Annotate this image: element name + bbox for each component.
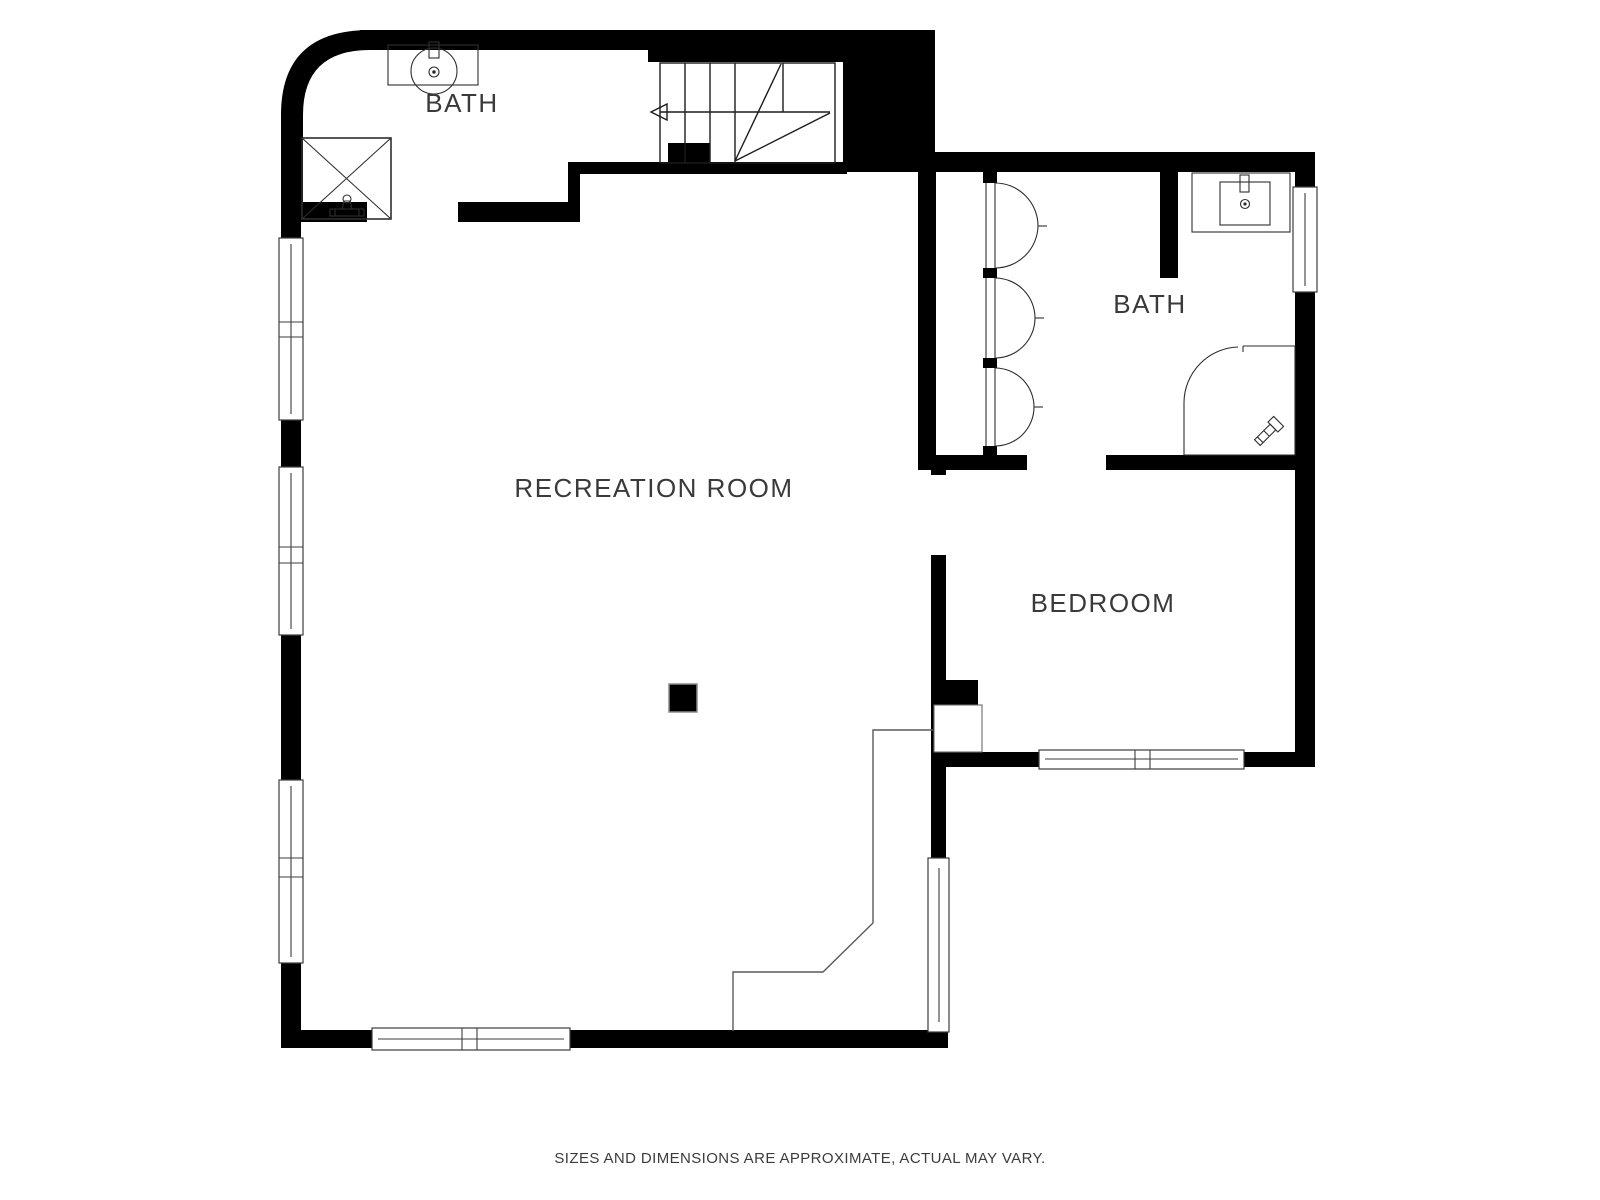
shower-head-icon	[1252, 416, 1283, 447]
corner-shower-icon	[1184, 346, 1295, 455]
winder-line	[735, 113, 830, 161]
wall-segment	[458, 202, 580, 222]
window-bath-right	[1293, 187, 1317, 292]
window-left-a	[279, 238, 303, 420]
floor-plan-page: BATH BATH RECREATION ROOM BEDROOM SIZES …	[0, 0, 1600, 1200]
window-side-lower	[928, 858, 949, 1032]
wall-segment	[1106, 455, 1295, 470]
wall-segment	[843, 30, 935, 172]
floor-plan-drawing: BATH BATH RECREATION ROOM BEDROOM SIZES …	[0, 0, 1600, 1200]
walls	[281, 30, 1315, 1048]
window-bedroom	[1039, 750, 1244, 769]
label-bath-right: BATH	[1113, 289, 1186, 319]
bath-upper-fixtures	[302, 42, 478, 219]
wall-segment	[934, 680, 978, 705]
structural-column	[669, 684, 697, 712]
disclaimer-text: SIZES AND DIMENSIONS ARE APPROXIMATE, AC…	[554, 1150, 1045, 1167]
vanity-sink-icon	[1192, 173, 1290, 232]
wall-notch	[934, 705, 982, 752]
label-bath-upper: BATH	[425, 88, 498, 118]
wall-segment	[648, 30, 845, 62]
wall-segment	[668, 143, 710, 174]
wall-curved-corner	[281, 30, 370, 222]
closet-bifold-doors	[983, 172, 1047, 457]
wall-segment	[1244, 752, 1315, 767]
wall-stub-bath	[1160, 172, 1178, 278]
window-left-c	[279, 780, 303, 963]
window-bottom	[372, 1028, 570, 1050]
label-bedroom: BEDROOM	[1031, 588, 1176, 618]
wall-segment	[931, 455, 946, 475]
ceiling-break-line	[733, 730, 933, 1031]
wall-segment	[918, 172, 936, 457]
wall-segment	[931, 752, 1039, 767]
wall-segment	[360, 30, 652, 50]
wall-segment	[918, 152, 1315, 172]
window-left-b	[279, 467, 303, 635]
label-recreation-room: RECREATION ROOM	[514, 473, 793, 503]
